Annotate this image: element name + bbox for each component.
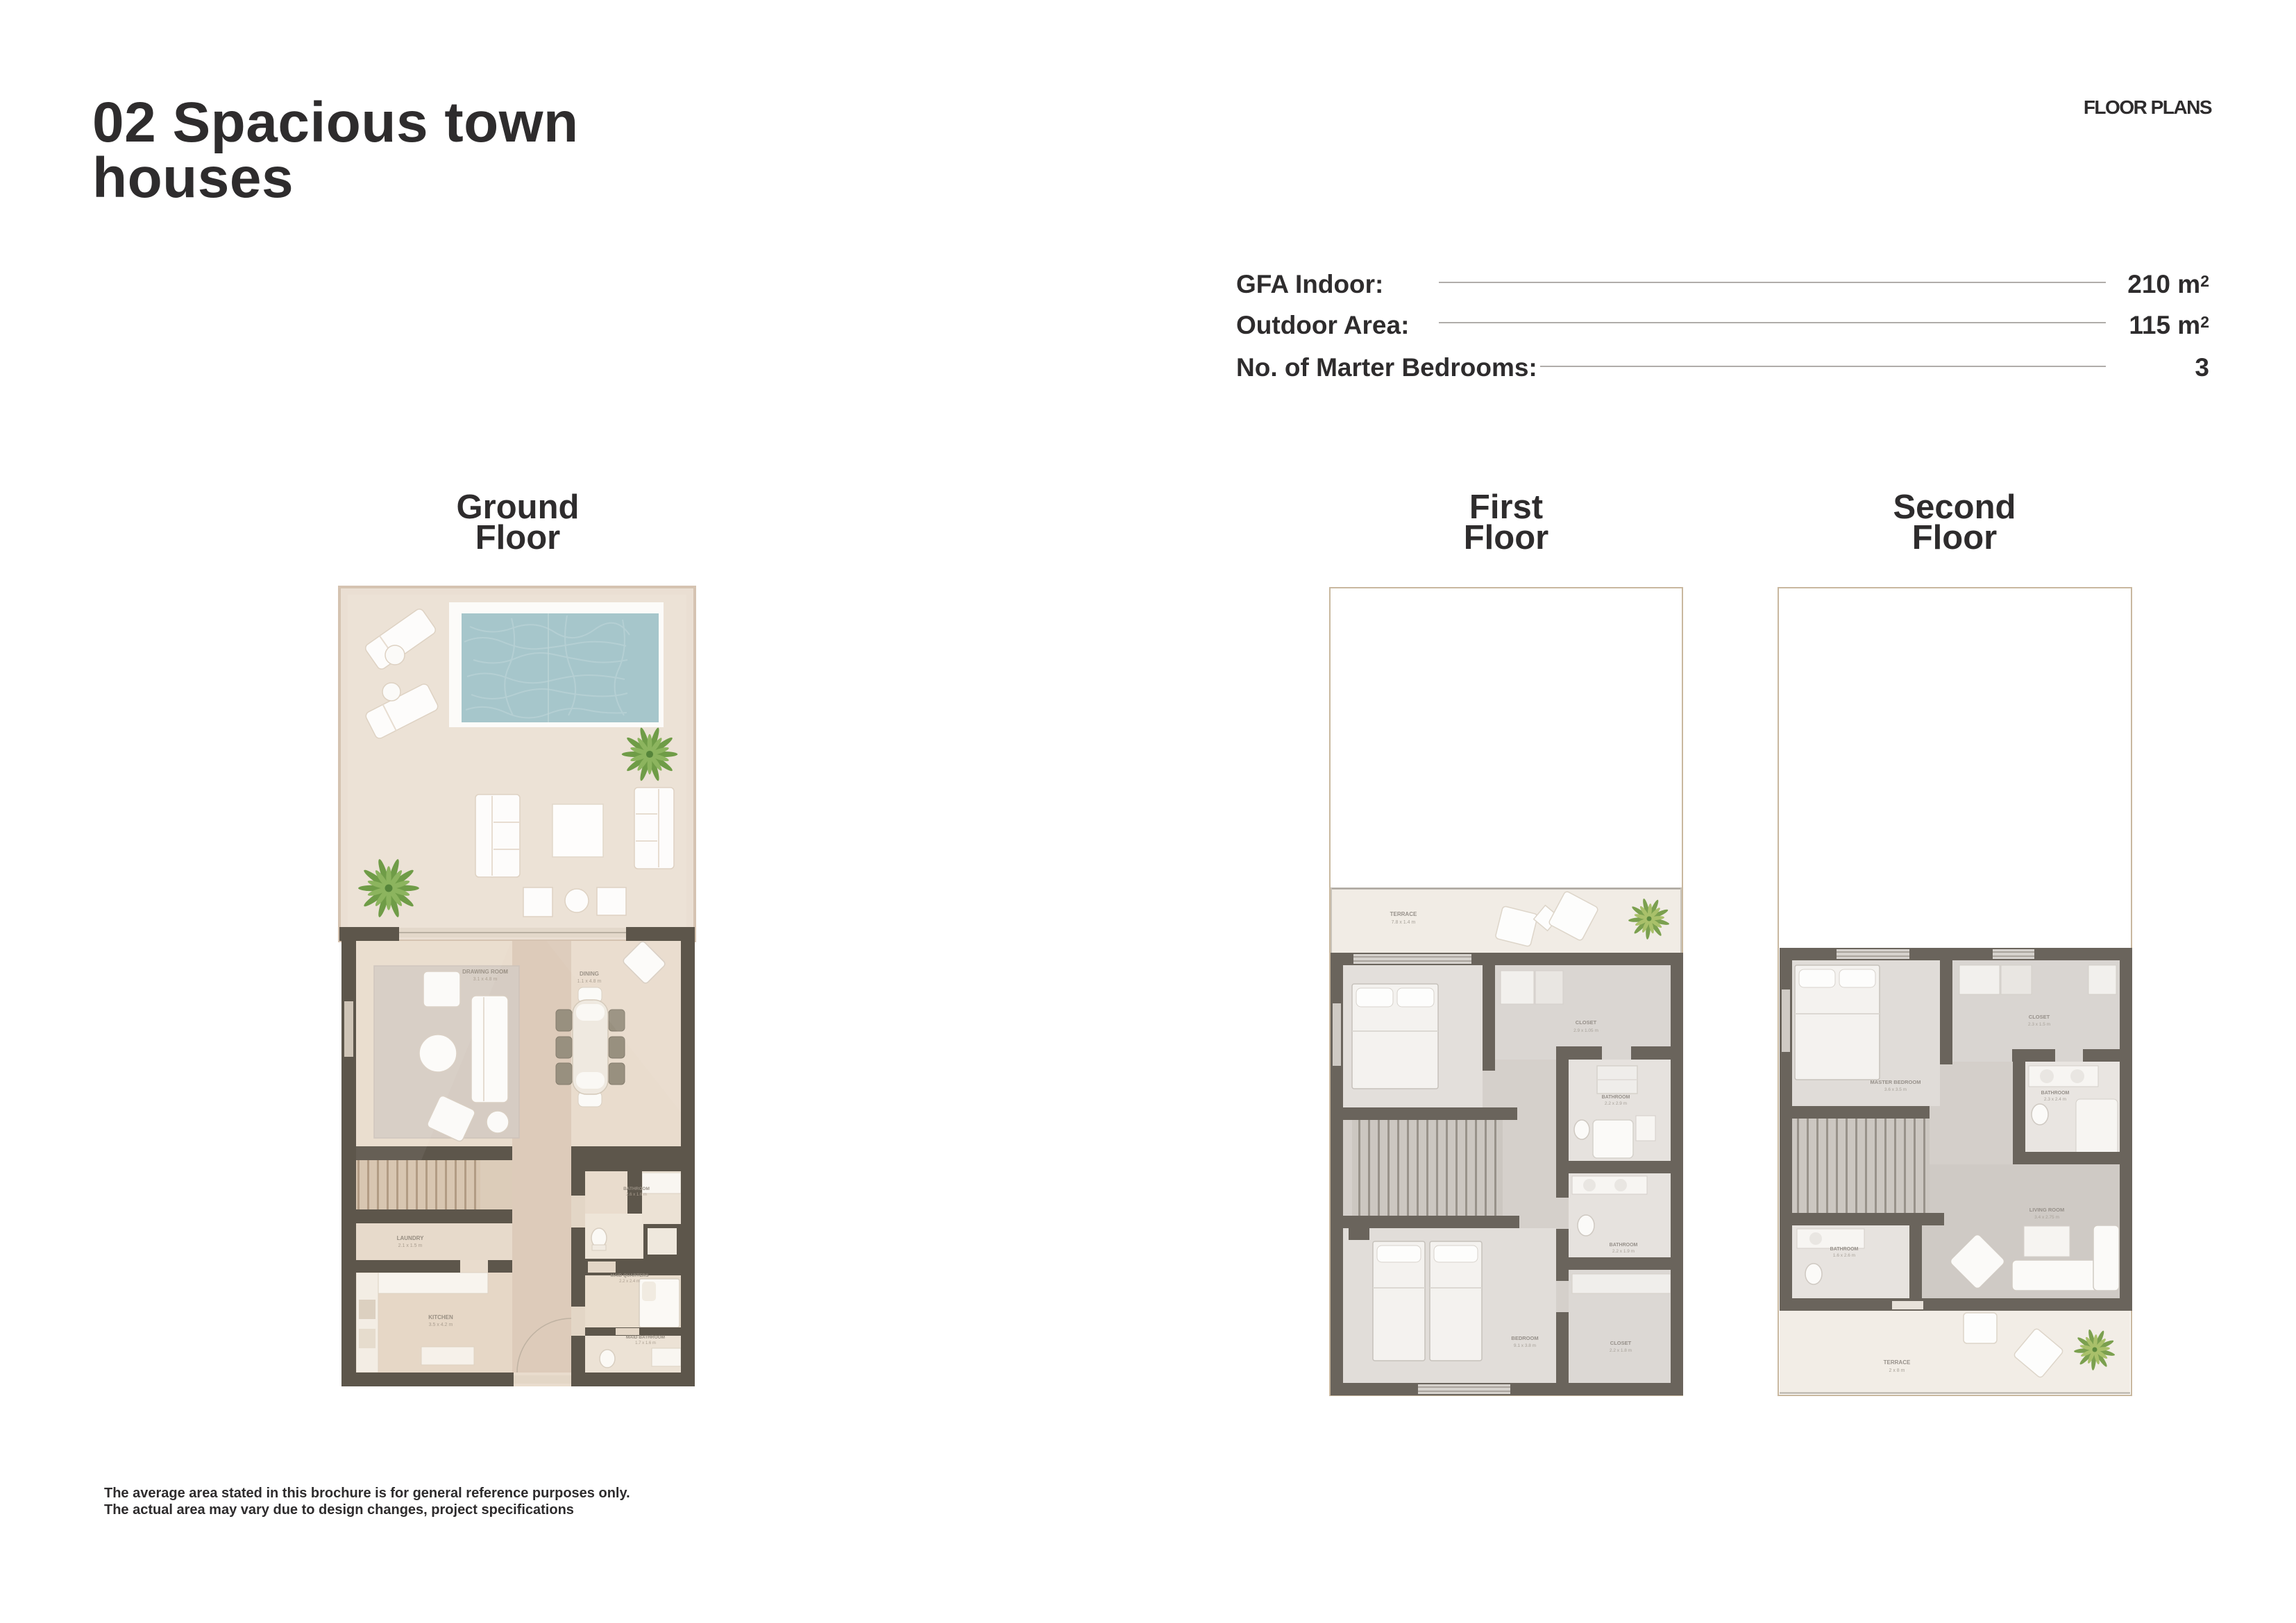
svg-text:2.6 x 1.6 m: 2.6 x 1.6 m (626, 1193, 647, 1197)
svg-text:MASTER BEDROOM: MASTER BEDROOM (1871, 1079, 1921, 1085)
svg-text:2.2 x 2.4 m: 2.2 x 2.4 m (619, 1280, 640, 1284)
svg-text:7.8 x 1.4 m: 7.8 x 1.4 m (1392, 920, 1416, 925)
svg-text:MAID QUARTERS: MAID QUARTERS (611, 1273, 650, 1278)
svg-text:BATHROOM: BATHROOM (623, 1187, 650, 1191)
svg-text:KITCHEN: KITCHEN (428, 1314, 453, 1320)
svg-text:CLOSET: CLOSET (1576, 1019, 1597, 1026)
svg-text:CLOSET: CLOSET (2029, 1014, 2050, 1020)
svg-text:MAID BATHROOM: MAID BATHROOM (626, 1335, 665, 1340)
svg-text:3.4 x 2.75 m: 3.4 x 2.75 m (2034, 1215, 2059, 1220)
svg-text:BATHROOM: BATHROOM (1602, 1095, 1630, 1100)
svg-text:2.1 x 1.5 m: 2.1 x 1.5 m (398, 1243, 423, 1248)
svg-text:BEDROOM: BEDROOM (1511, 1335, 1538, 1341)
svg-text:TERRACE: TERRACE (1390, 911, 1417, 917)
svg-text:CLOSET: CLOSET (1610, 1340, 1632, 1346)
svg-text:2 x 8 m: 2 x 8 m (1889, 1368, 1905, 1373)
svg-text:BATHROOM: BATHROOM (1610, 1243, 1638, 1248)
svg-text:BATHROOM: BATHROOM (2041, 1091, 2070, 1096)
svg-text:2.2 x 2.9 m: 2.2 x 2.9 m (1605, 1101, 1627, 1106)
svg-text:2.3 x 2.4 m: 2.3 x 2.4 m (2044, 1097, 2066, 1102)
svg-text:2.3 x 1.5 m: 2.3 x 1.5 m (2028, 1022, 2050, 1027)
svg-text:LAUNDRY: LAUNDRY (397, 1235, 424, 1241)
svg-text:1.6 x 2.6 m: 1.6 x 2.6 m (1833, 1253, 1855, 1258)
svg-text:2.9 x 1.05 m: 2.9 x 1.05 m (1573, 1028, 1598, 1033)
svg-text:2.2 x 1.9 m: 2.2 x 1.9 m (1612, 1249, 1635, 1254)
svg-text:9.1 x 3.8 m: 9.1 x 3.8 m (1514, 1343, 1536, 1348)
svg-text:2.2 x 1.8 m: 2.2 x 1.8 m (1610, 1348, 1632, 1353)
svg-text:1.7 x 1.6 m: 1.7 x 1.6 m (635, 1341, 656, 1345)
svg-text:BATHROOM: BATHROOM (1830, 1247, 1859, 1252)
svg-text:3.5 x 4.2 m: 3.5 x 4.2 m (429, 1323, 453, 1327)
svg-text:TERRACE: TERRACE (1884, 1359, 1911, 1366)
svg-text:LIVING ROOM: LIVING ROOM (2029, 1207, 2064, 1213)
svg-text:3.6 x 3.5 m: 3.6 x 3.5 m (1884, 1087, 1907, 1092)
